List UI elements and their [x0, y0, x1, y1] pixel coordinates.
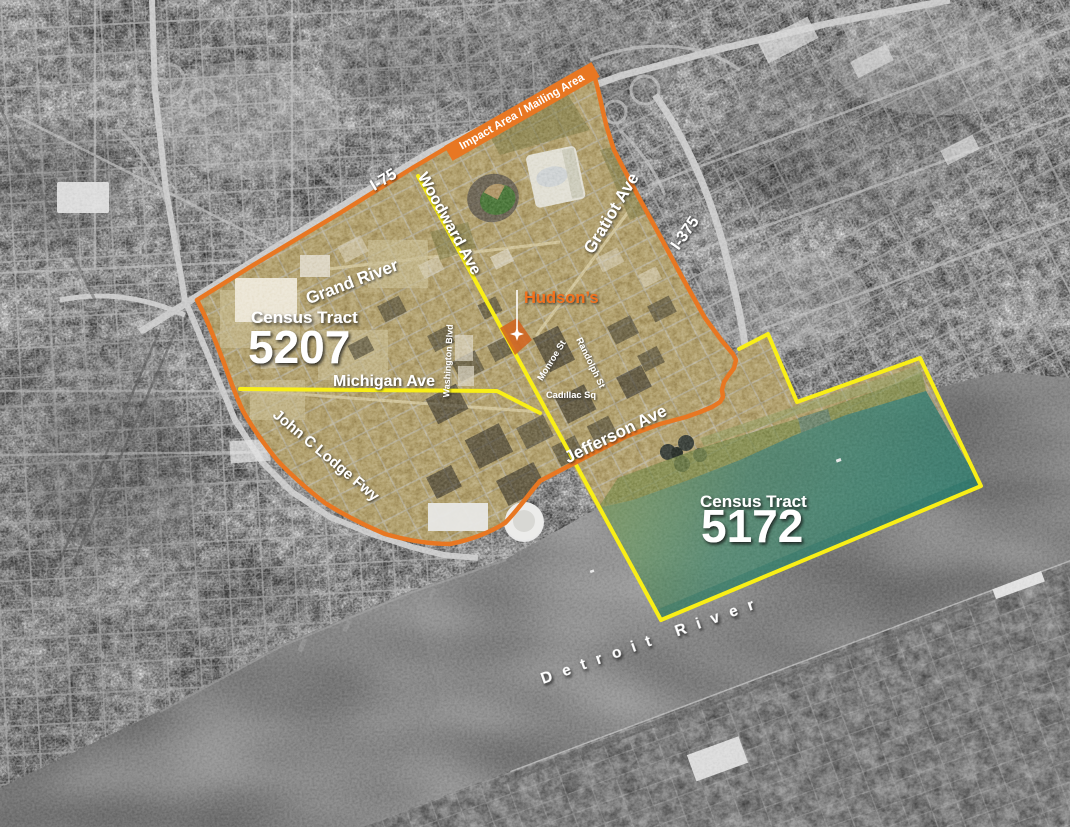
- svg-text:Hudson’s: Hudson’s: [524, 289, 599, 307]
- svg-text:5172: 5172: [701, 500, 803, 552]
- svg-text:5207: 5207: [248, 321, 350, 373]
- svg-text:Michigan Ave: Michigan Ave: [333, 373, 435, 390]
- svg-text:Cadıllac Sq: Cadıllac Sq: [546, 390, 596, 400]
